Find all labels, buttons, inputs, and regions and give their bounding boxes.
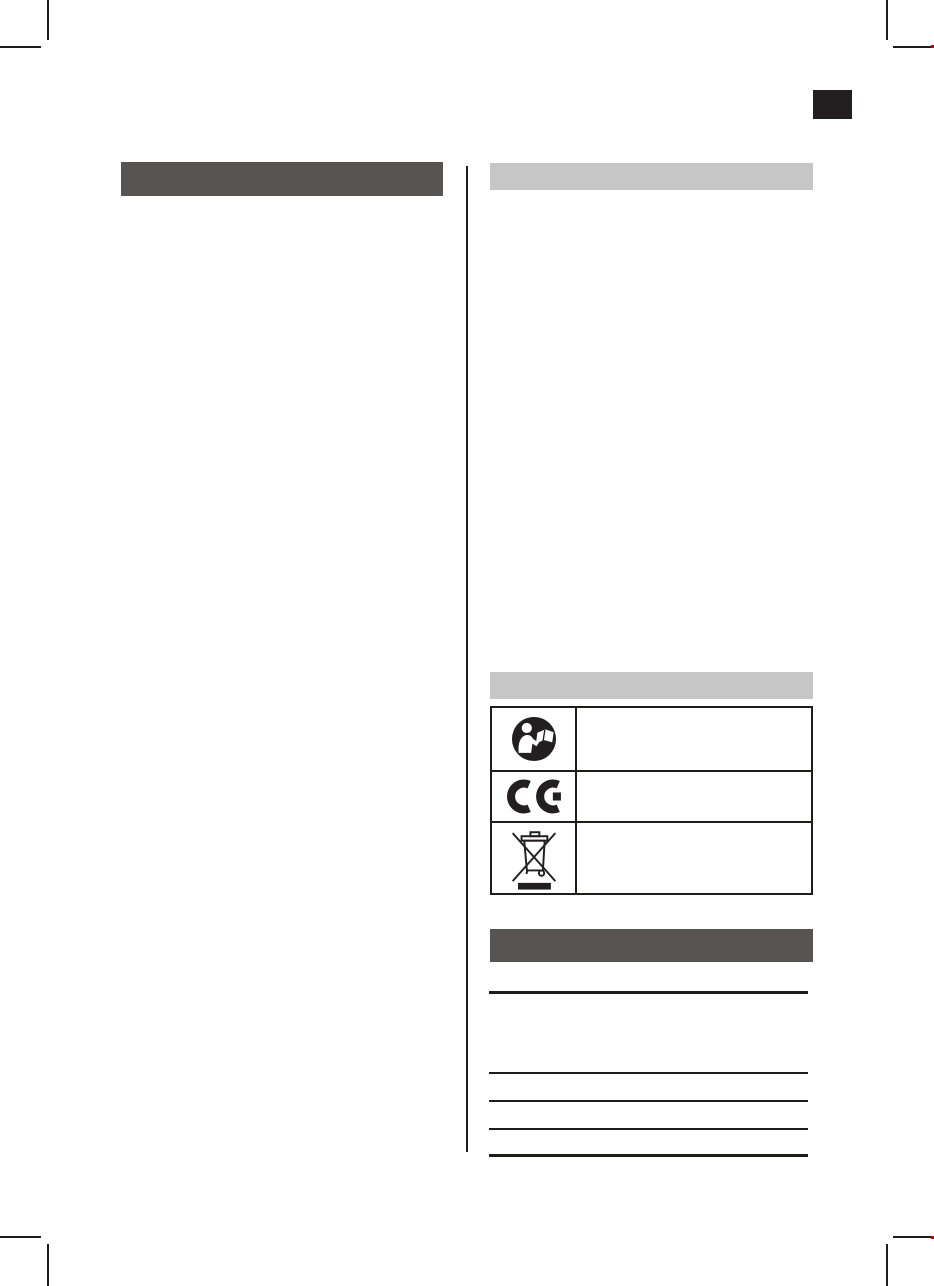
symbols-section-bar	[490, 672, 813, 699]
techdata-row-rule	[489, 1072, 808, 1074]
crop-mark-top-left-horizontal	[0, 46, 41, 48]
crop-mark-bottom-right-vertical	[886, 1244, 888, 1286]
manual-page	[0, 0, 934, 1286]
techdata-table-top-rule	[489, 991, 808, 994]
symbols-table-row	[492, 821, 577, 893]
symbol-description	[577, 821, 811, 893]
techdata-row-rule	[489, 1100, 808, 1102]
crop-mark-bottom-left-vertical	[47, 1244, 49, 1286]
techdata-table-bottom-rule	[489, 1154, 808, 1157]
symbols-table-row	[492, 770, 577, 821]
crop-mark-top-right-vertical	[886, 0, 888, 40]
techdata-row-rule	[489, 1128, 808, 1130]
technical-data-heading-bar	[490, 929, 813, 962]
weee-crossed-out-bin-icon	[507, 826, 561, 890]
crop-mark-bottom-right-horizontal	[893, 1236, 933, 1238]
read-manual-icon	[511, 716, 557, 762]
right-column-top-section-bar	[490, 163, 813, 190]
column-divider-rule	[466, 166, 468, 1152]
symbols-table-row	[492, 708, 577, 770]
crop-mark-top-right-horizontal	[893, 46, 933, 48]
crop-mark-bottom-left-horizontal	[0, 1236, 41, 1238]
left-column-heading-bar	[121, 162, 443, 196]
symbols-table	[490, 706, 813, 895]
ce-mark-icon	[506, 778, 562, 815]
crop-mark-top-left-vertical	[47, 0, 49, 40]
symbol-description	[577, 708, 811, 770]
language-tab	[813, 90, 852, 119]
symbol-description	[577, 770, 811, 821]
